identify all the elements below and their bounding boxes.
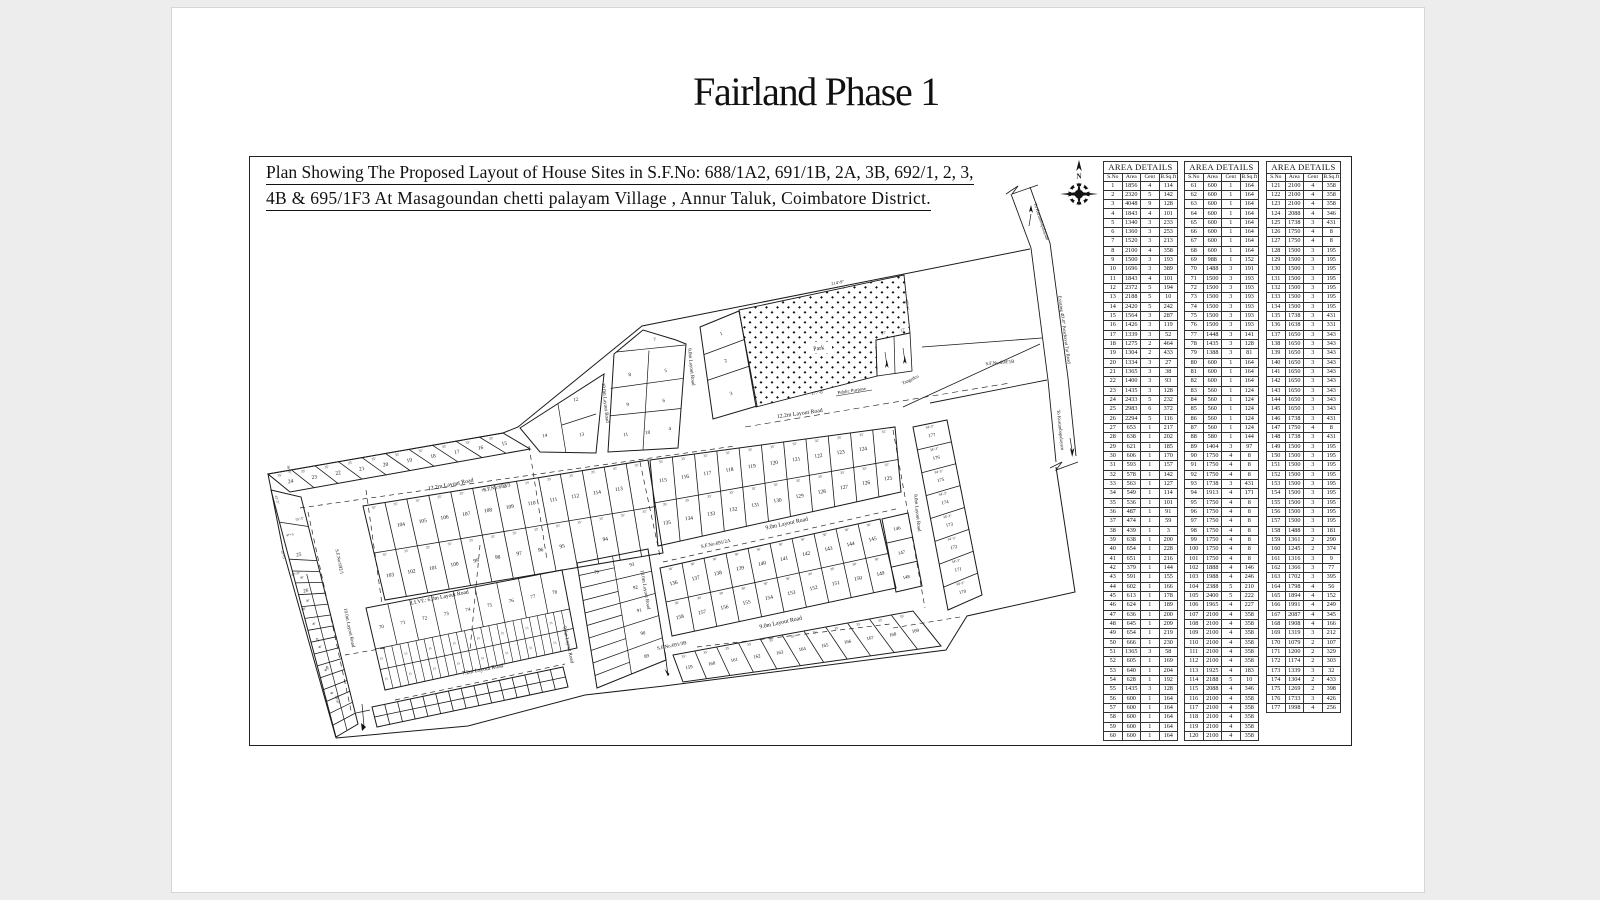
svg-text:35': 35' — [884, 463, 889, 468]
svg-text:38'-6": 38'-6" — [334, 695, 340, 705]
svg-text:15: 15 — [501, 631, 505, 636]
svg-text:35': 35' — [591, 470, 596, 475]
svg-text:35': 35' — [642, 509, 647, 514]
svg-text:165: 165 — [821, 643, 830, 649]
svg-text:40': 40' — [300, 575, 305, 580]
svg-text:24: 24 — [288, 478, 295, 485]
svg-text:35': 35' — [324, 465, 329, 470]
svg-text:30': 30' — [690, 562, 695, 567]
svg-text:30': 30' — [712, 557, 717, 562]
svg-text:35': 35' — [796, 478, 801, 483]
svg-text:126: 126 — [862, 480, 871, 487]
svg-text:35': 35' — [371, 505, 376, 510]
svg-text:111: 111 — [549, 497, 558, 504]
svg-text:34'-3": 34'-3" — [930, 446, 940, 452]
svg-text:30': 30' — [874, 557, 879, 562]
svg-text:76: 76 — [509, 599, 515, 605]
svg-text:174: 174 — [941, 500, 950, 506]
svg-text:40': 40' — [306, 598, 311, 603]
svg-text:9.0m Layout Road: 9.0m Layout Road — [686, 348, 695, 386]
svg-text:142: 142 — [802, 550, 811, 558]
svg-text:128: 128 — [817, 489, 826, 496]
svg-text:151: 151 — [831, 580, 840, 588]
svg-text:36'-6": 36'-6" — [286, 465, 292, 475]
svg-text:35': 35' — [577, 520, 582, 525]
svg-text:35': 35' — [725, 451, 730, 456]
svg-text:30': 30' — [822, 532, 827, 537]
svg-text:112: 112 — [571, 493, 580, 500]
svg-text:26: 26 — [303, 588, 310, 595]
svg-text:35': 35' — [426, 545, 431, 550]
svg-text:103: 103 — [386, 572, 395, 579]
svg-text:78: 78 — [552, 590, 558, 596]
svg-text:35': 35' — [415, 498, 420, 503]
svg-text:35': 35' — [681, 654, 686, 659]
svg-text:35': 35' — [747, 642, 752, 647]
svg-text:138: 138 — [713, 570, 722, 578]
svg-text:89: 89 — [644, 654, 650, 660]
svg-text:30': 30' — [852, 562, 857, 567]
svg-text:30': 30' — [719, 591, 724, 596]
svg-text:120: 120 — [770, 460, 779, 467]
svg-text:144: 144 — [846, 541, 855, 549]
svg-text:107: 107 — [462, 511, 471, 518]
svg-text:3: 3 — [729, 391, 734, 397]
svg-text:97: 97 — [516, 551, 523, 558]
svg-text:30': 30' — [778, 542, 783, 547]
svg-text:72: 72 — [422, 616, 428, 622]
svg-text:30': 30' — [697, 596, 702, 601]
svg-text:169: 169 — [912, 629, 921, 635]
svg-text:35': 35' — [770, 445, 775, 450]
svg-text:35': 35' — [681, 457, 686, 462]
svg-text:148: 148 — [902, 575, 911, 582]
svg-text:35': 35' — [556, 524, 561, 529]
svg-text:40': 40' — [330, 691, 335, 696]
svg-text:96: 96 — [538, 547, 545, 554]
svg-text:35': 35' — [512, 531, 517, 536]
svg-text:71: 71 — [400, 620, 406, 626]
svg-text:S.F.No:691/2A: S.F.No:691/2A — [701, 539, 732, 550]
svg-text:35': 35' — [725, 646, 730, 651]
svg-text:18: 18 — [430, 453, 437, 460]
svg-text:1: 1 — [720, 332, 725, 338]
svg-text:77: 77 — [530, 594, 536, 600]
svg-text:35': 35' — [814, 439, 819, 444]
svg-text:35': 35' — [569, 474, 574, 479]
svg-text:22: 22 — [335, 470, 342, 477]
svg-text:35': 35' — [729, 490, 734, 495]
svg-text:159: 159 — [685, 665, 694, 671]
svg-text:98: 98 — [495, 554, 502, 561]
svg-text:35': 35' — [840, 471, 845, 476]
svg-text:158: 158 — [675, 614, 684, 622]
svg-text:35': 35' — [489, 436, 494, 441]
svg-text:156: 156 — [720, 604, 729, 612]
svg-text:35': 35' — [748, 448, 753, 453]
svg-text:7: 7 — [653, 338, 657, 343]
svg-text:40': 40' — [318, 644, 323, 649]
svg-text:2: 2 — [724, 359, 729, 365]
svg-text:Existing 40'-0" Panchayat Tar: Existing 40'-0" Panchayat Tar Road — [1056, 296, 1071, 365]
svg-text:4: 4 — [668, 427, 672, 432]
svg-text:35': 35' — [834, 626, 839, 631]
svg-text:30': 30' — [734, 552, 739, 557]
svg-text:30': 30' — [785, 576, 790, 581]
svg-text:30': 30' — [674, 601, 679, 606]
svg-text:34'-3": 34'-3" — [925, 424, 935, 430]
svg-text:35': 35' — [837, 436, 842, 441]
svg-text:177'-6": 177'-6" — [811, 389, 825, 396]
svg-text:25: 25 — [296, 552, 303, 559]
svg-text:35': 35' — [534, 527, 539, 532]
svg-text:12: 12 — [573, 397, 579, 403]
svg-text:15: 15 — [476, 636, 480, 641]
svg-text:92: 92 — [633, 585, 639, 591]
svg-text:122: 122 — [814, 453, 823, 460]
svg-text:35': 35' — [348, 461, 353, 466]
svg-text:35': 35' — [881, 430, 886, 435]
svg-text:150: 150 — [854, 575, 863, 583]
svg-text:35': 35' — [465, 440, 470, 445]
svg-text:35': 35' — [792, 442, 797, 447]
svg-text:12.2m Layout Road: 12.2m Layout Road — [777, 408, 824, 420]
svg-text:To Kurumbapalayam: To Kurumbapalayam — [1033, 202, 1051, 241]
svg-text:19: 19 — [406, 457, 413, 464]
svg-text:35': 35' — [371, 457, 376, 462]
svg-text:15: 15 — [553, 640, 557, 645]
svg-text:115: 115 — [659, 477, 668, 484]
svg-text:N: N — [1076, 173, 1081, 181]
svg-text:167: 167 — [866, 636, 875, 642]
svg-text:15: 15 — [380, 656, 384, 661]
svg-text:30': 30' — [808, 572, 813, 577]
svg-text:35': 35' — [856, 622, 861, 627]
svg-text:30': 30' — [763, 581, 768, 586]
svg-text:135: 135 — [663, 520, 672, 527]
svg-text:15: 15 — [501, 441, 508, 448]
svg-text:214'-9": 214'-9" — [831, 279, 845, 286]
svg-text:9.0m Layout Road: 9.0m Layout Road — [912, 494, 921, 532]
svg-text:149: 149 — [876, 570, 885, 578]
svg-text:35': 35' — [620, 513, 625, 518]
svg-text:129: 129 — [795, 493, 804, 500]
svg-text:S.F.No:69/F1B: S.F.No:69/F1B — [985, 360, 1014, 368]
svg-text:35': 35' — [382, 552, 387, 557]
svg-text:35': 35' — [634, 463, 639, 468]
svg-text:15: 15 — [384, 677, 388, 682]
svg-text:35': 35' — [491, 534, 496, 539]
svg-text:47'+5: 47'+5 — [286, 532, 294, 537]
svg-text:35': 35' — [599, 517, 604, 522]
svg-text:35': 35' — [447, 542, 452, 547]
svg-text:153: 153 — [787, 590, 796, 598]
svg-text:35': 35' — [442, 444, 447, 449]
svg-text:123: 123 — [836, 449, 845, 456]
svg-text:9.0m Layout Road: 9.0m Layout Road — [759, 616, 803, 631]
svg-text:175: 175 — [937, 478, 946, 484]
svg-text:170: 170 — [959, 590, 968, 596]
svg-text:117: 117 — [703, 470, 712, 477]
svg-text:136: 136 — [669, 580, 678, 588]
svg-text:127: 127 — [840, 484, 849, 491]
svg-text:55'-3": 55'-3" — [295, 516, 305, 522]
svg-text:162: 162 — [753, 654, 762, 660]
svg-text:15: 15 — [452, 641, 456, 646]
svg-text:40': 40' — [312, 621, 317, 626]
svg-text:94: 94 — [602, 536, 609, 543]
svg-text:8: 8 — [628, 373, 632, 378]
svg-text:15: 15 — [481, 656, 485, 661]
svg-text:35': 35' — [751, 486, 756, 491]
svg-text:S.F.No:692/3: S.F.No:692/3 — [483, 482, 512, 493]
svg-text:176: 176 — [932, 455, 941, 461]
svg-text:104: 104 — [397, 522, 406, 529]
svg-text:34'-3": 34'-3" — [956, 581, 966, 587]
svg-text:Tangedco: Tangedco — [901, 373, 920, 385]
svg-text:34'-3": 34'-3" — [938, 491, 948, 497]
svg-text:15: 15 — [433, 666, 437, 671]
svg-text:101: 101 — [429, 565, 438, 572]
svg-text:95: 95 — [559, 543, 566, 550]
svg-text:160: 160 — [708, 661, 717, 667]
svg-text:132: 132 — [729, 506, 738, 513]
svg-text:177: 177 — [928, 433, 937, 439]
svg-text:116: 116 — [681, 474, 690, 481]
svg-text:157: 157 — [698, 609, 707, 617]
svg-text:146: 146 — [893, 526, 902, 533]
svg-text:35': 35' — [459, 491, 464, 496]
svg-text:35': 35' — [469, 538, 474, 543]
svg-text:23: 23 — [311, 474, 318, 481]
svg-text:35': 35' — [707, 494, 712, 499]
svg-text:14: 14 — [542, 433, 548, 439]
svg-text:74: 74 — [465, 607, 471, 613]
svg-text:30': 30' — [866, 523, 871, 528]
svg-text:75: 75 — [487, 603, 493, 609]
svg-text:15: 15 — [525, 626, 529, 631]
svg-text:46': 46' — [301, 607, 306, 612]
svg-text:S.F.No:691/3B: S.F.No:691/3B — [657, 641, 688, 652]
svg-text:163: 163 — [776, 650, 785, 656]
svg-text:15: 15 — [529, 646, 533, 651]
svg-text:143: 143 — [824, 546, 833, 554]
svg-text:139: 139 — [736, 565, 745, 573]
svg-text:102: 102 — [407, 568, 416, 575]
svg-text:30': 30' — [741, 586, 746, 591]
svg-text:133: 133 — [707, 511, 716, 518]
svg-text:9.0m Layout Road: 9.0m Layout Road — [765, 517, 809, 532]
svg-text:137: 137 — [691, 575, 700, 583]
svg-text:35': 35' — [404, 549, 409, 554]
svg-text:106: 106 — [440, 514, 449, 521]
svg-text:35': 35' — [878, 618, 883, 623]
svg-text:45': 45' — [314, 637, 319, 642]
svg-text:35': 35' — [395, 453, 400, 458]
svg-text:35': 35' — [899, 614, 904, 619]
svg-text:35': 35' — [703, 454, 708, 459]
svg-text:171: 171 — [954, 567, 963, 573]
svg-text:114: 114 — [593, 489, 602, 496]
svg-text:35': 35' — [663, 502, 668, 507]
svg-text:166: 166 — [844, 639, 853, 645]
svg-text:30': 30' — [844, 527, 849, 532]
svg-text:35': 35' — [525, 481, 530, 486]
svg-text:9.0m Layout Road: 9.0m Layout Road — [561, 626, 574, 664]
svg-text:34'-3": 34'-3" — [947, 536, 957, 542]
svg-text:145: 145 — [868, 536, 877, 544]
svg-text:15: 15 — [457, 661, 461, 666]
svg-text:35': 35' — [659, 460, 664, 465]
svg-text:155: 155 — [742, 599, 751, 607]
svg-text:91: 91 — [637, 608, 643, 614]
svg-text:70: 70 — [379, 625, 385, 631]
svg-text:134: 134 — [685, 515, 694, 522]
svg-text:9: 9 — [626, 403, 630, 408]
svg-text:130: 130 — [773, 498, 782, 505]
svg-text:15: 15 — [549, 621, 553, 626]
svg-text:10: 10 — [645, 431, 651, 437]
svg-text:35': 35' — [613, 466, 618, 471]
svg-text:6: 6 — [662, 399, 666, 404]
svg-text:35': 35' — [773, 482, 778, 487]
svg-text:110: 110 — [527, 500, 536, 507]
svg-text:34'-3": 34'-3" — [951, 558, 961, 564]
svg-text:154: 154 — [764, 594, 773, 602]
svg-text:173: 173 — [946, 522, 955, 528]
svg-text:15: 15 — [428, 646, 432, 651]
svg-text:124: 124 — [859, 446, 868, 453]
svg-text:109: 109 — [505, 504, 514, 511]
svg-text:125: 125 — [884, 475, 893, 482]
svg-text:147: 147 — [898, 550, 907, 557]
svg-text:105: 105 — [418, 518, 427, 525]
svg-text:15: 15 — [408, 671, 412, 676]
svg-text:21: 21 — [359, 466, 366, 473]
svg-text:141: 141 — [780, 555, 789, 563]
svg-text:30': 30' — [800, 537, 805, 542]
svg-text:35': 35' — [277, 473, 282, 478]
svg-text:172: 172 — [950, 545, 959, 551]
svg-text:11: 11 — [623, 433, 629, 439]
svg-text:13: 13 — [579, 432, 585, 438]
svg-text:113: 113 — [615, 486, 624, 493]
svg-text:35': 35' — [703, 650, 708, 655]
svg-text:161: 161 — [731, 658, 740, 664]
svg-text:90: 90 — [640, 631, 646, 637]
svg-text:5: 5 — [664, 369, 668, 374]
svg-text:47'+5: 47'+5 — [280, 550, 286, 559]
svg-text:35': 35' — [301, 469, 306, 474]
svg-text:35': 35' — [859, 433, 864, 438]
svg-text:35': 35' — [790, 634, 795, 639]
svg-text:17: 17 — [454, 449, 461, 456]
svg-text:164: 164 — [798, 647, 807, 653]
svg-text:35': 35' — [685, 498, 690, 503]
svg-text:121: 121 — [792, 456, 801, 463]
svg-text:35': 35' — [547, 477, 552, 482]
svg-text:35': 35' — [418, 449, 423, 454]
svg-text:108: 108 — [484, 507, 493, 514]
svg-text:S.F.No:692/1: S.F.No:692/1 — [333, 549, 343, 576]
svg-text:118: 118 — [725, 467, 734, 474]
svg-text:16: 16 — [478, 445, 485, 452]
svg-text:30': 30' — [830, 567, 835, 572]
svg-text:140: 140 — [758, 560, 767, 568]
svg-text:15: 15 — [404, 651, 408, 656]
svg-text:7.2m Layout Road: 7.2m Layout Road — [462, 663, 504, 677]
svg-text:119: 119 — [748, 463, 757, 470]
svg-text:152: 152 — [809, 585, 818, 593]
svg-text:35': 35' — [769, 638, 774, 643]
svg-text:35': 35' — [818, 474, 823, 479]
svg-text:To Kurumbapalayam: To Kurumbapalayam — [1055, 410, 1064, 451]
svg-text:35': 35' — [393, 502, 398, 507]
svg-text:10.0m Layout Road: 10.0m Layout Road — [342, 608, 355, 649]
svg-text:35': 35' — [437, 495, 442, 500]
svg-text:20: 20 — [383, 462, 390, 469]
svg-text:73: 73 — [444, 612, 450, 618]
svg-text:168: 168 — [889, 632, 898, 638]
svg-text:30': 30' — [756, 547, 761, 552]
svg-text:12.2m Layout Road: 12.2m Layout Road — [428, 478, 475, 493]
svg-text:10.0m Layout Road: 10.0m Layout Road — [639, 570, 651, 611]
svg-text:15: 15 — [505, 651, 509, 656]
svg-text:93: 93 — [629, 562, 635, 568]
svg-text:30': 30' — [668, 567, 673, 572]
svg-text:34'-3": 34'-3" — [934, 469, 944, 475]
svg-text:34'-3": 34'-3" — [943, 514, 953, 520]
svg-text:131: 131 — [751, 502, 760, 509]
svg-text:35': 35' — [862, 467, 867, 472]
svg-text:100: 100 — [450, 561, 459, 568]
